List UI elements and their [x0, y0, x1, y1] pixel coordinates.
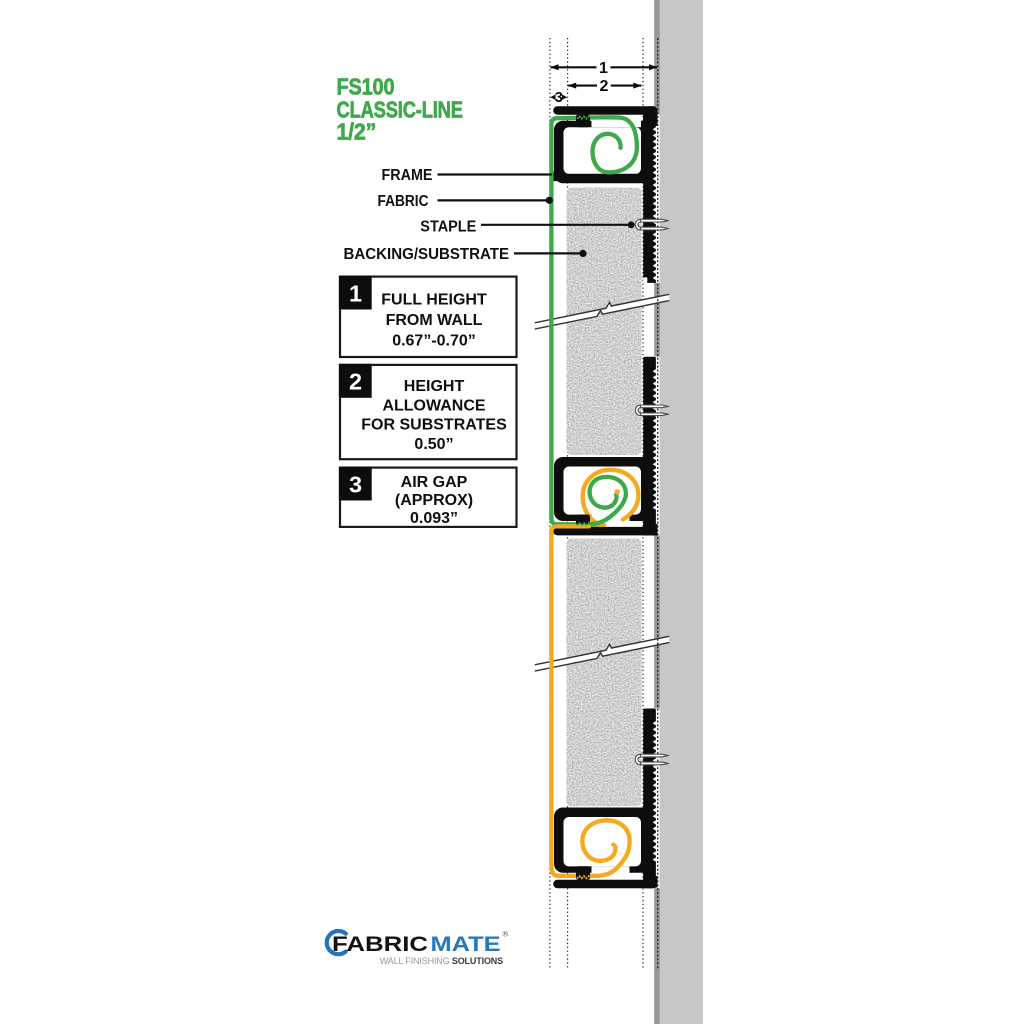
svg-text:FABRIC: FABRIC — [378, 193, 429, 210]
svg-text:1/2”: 1/2” — [337, 119, 377, 145]
svg-text:1: 1 — [599, 60, 608, 77]
svg-text:AIR GAP: AIR GAP — [401, 474, 468, 491]
svg-text:MATE: MATE — [431, 932, 501, 956]
svg-text:2: 2 — [349, 369, 362, 395]
svg-text:STAPLE: STAPLE — [420, 218, 476, 235]
svg-text:WALL FINISHING SOLUTIONS: WALL FINISHING SOLUTIONS — [380, 956, 503, 966]
svg-text:0.67”-0.70”: 0.67”-0.70” — [392, 332, 476, 349]
svg-text:FRAME: FRAME — [382, 167, 433, 184]
svg-text:FABRIC: FABRIC — [332, 932, 428, 956]
svg-text:(APPROX): (APPROX) — [395, 492, 473, 509]
svg-text:FROM WALL: FROM WALL — [386, 312, 483, 329]
svg-text:FULL HEIGHT: FULL HEIGHT — [381, 291, 487, 308]
svg-text:FOR SUBSTRATES: FOR SUBSTRATES — [361, 417, 507, 434]
svg-text:®: ® — [503, 930, 509, 939]
svg-text:HEIGHT: HEIGHT — [404, 378, 465, 395]
svg-text:2: 2 — [600, 78, 609, 95]
svg-text:0.093”: 0.093” — [410, 510, 458, 527]
svg-text:FS100: FS100 — [337, 73, 395, 100]
svg-text:3: 3 — [349, 471, 362, 497]
svg-text:3: 3 — [555, 90, 563, 106]
svg-text:0.50”: 0.50” — [414, 436, 453, 453]
svg-text:ALLOWANCE: ALLOWANCE — [382, 397, 485, 414]
svg-text:1: 1 — [349, 280, 362, 306]
svg-text:BACKING/SUBSTRATE: BACKING/SUBSTRATE — [344, 246, 510, 263]
